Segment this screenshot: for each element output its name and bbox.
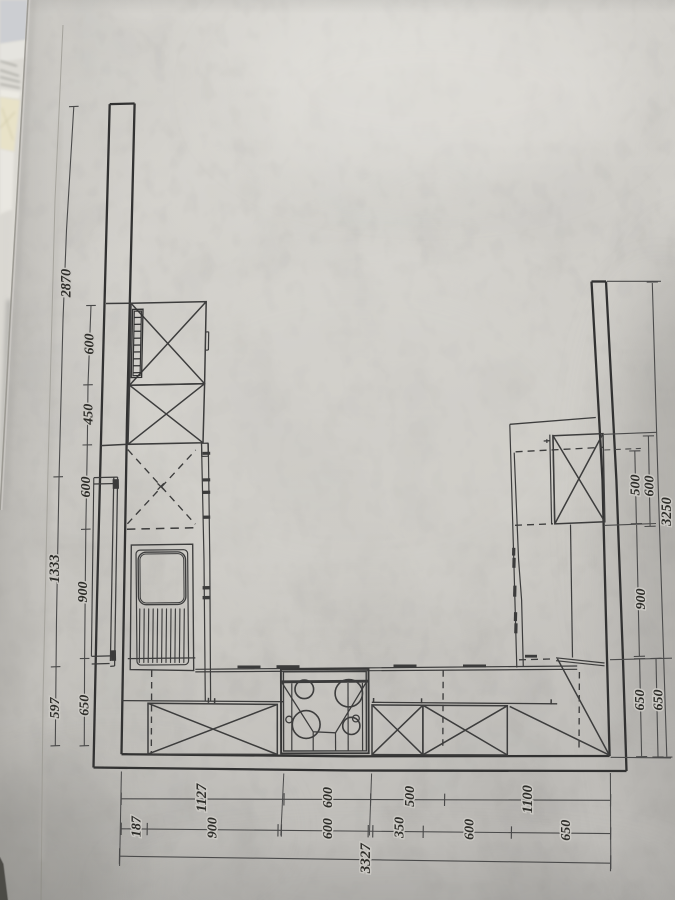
svg-text:600: 600 xyxy=(321,787,336,808)
svg-text:187: 187 xyxy=(130,815,145,837)
svg-text:600: 600 xyxy=(643,476,658,497)
svg-text:350: 350 xyxy=(393,817,408,839)
svg-text:600: 600 xyxy=(463,819,478,840)
svg-text:900: 900 xyxy=(634,589,649,610)
svg-text:600: 600 xyxy=(321,818,336,839)
svg-text:597: 597 xyxy=(48,697,63,719)
svg-text:650: 650 xyxy=(559,820,574,841)
svg-text:600: 600 xyxy=(83,334,98,355)
svg-text:650: 650 xyxy=(652,690,667,711)
svg-text:500: 500 xyxy=(629,475,644,496)
svg-text:650: 650 xyxy=(78,695,93,716)
svg-text:900: 900 xyxy=(205,817,220,838)
svg-text:450: 450 xyxy=(81,404,96,426)
svg-text:500: 500 xyxy=(403,786,418,807)
svg-text:1127: 1127 xyxy=(194,783,210,812)
svg-text:3327: 3327 xyxy=(358,843,374,875)
svg-text:1333: 1333 xyxy=(47,555,63,583)
svg-text:900: 900 xyxy=(76,582,91,603)
svg-text:2870: 2870 xyxy=(58,269,74,298)
svg-text:650: 650 xyxy=(633,690,648,711)
svg-text:3250: 3250 xyxy=(659,497,675,526)
svg-text:600: 600 xyxy=(79,477,94,498)
svg-text:1100: 1100 xyxy=(520,785,536,813)
